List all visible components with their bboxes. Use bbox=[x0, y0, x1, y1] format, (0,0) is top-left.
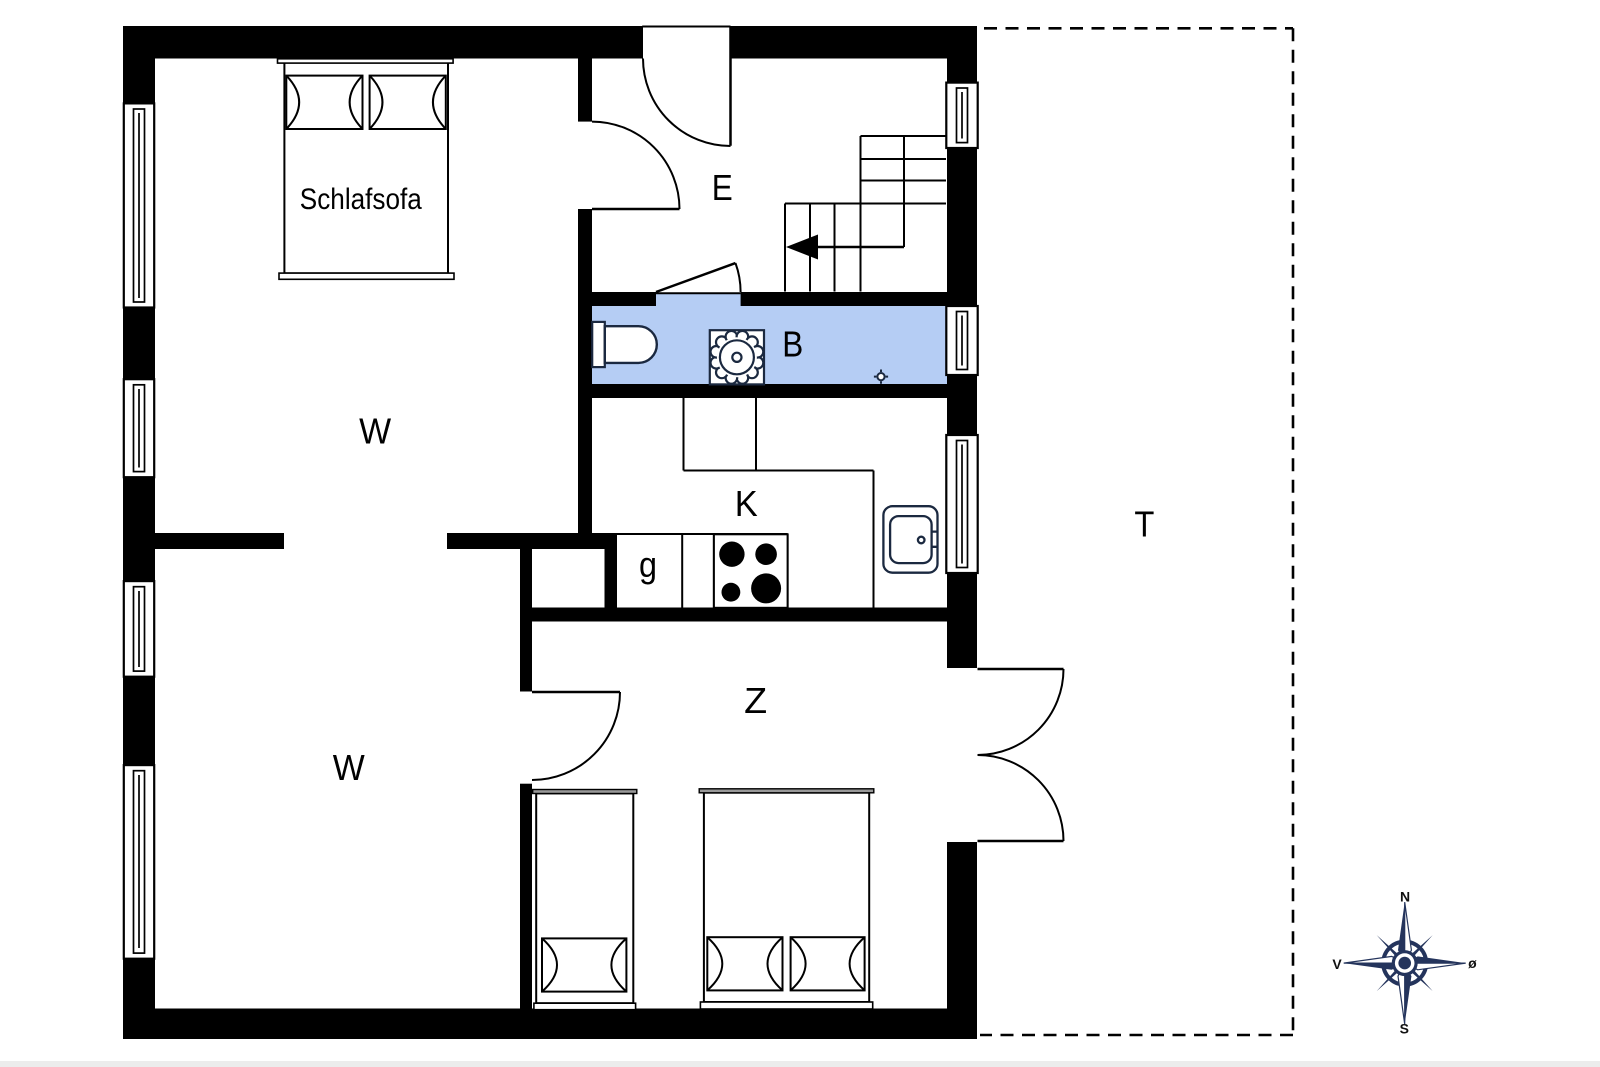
svg-text:Schlafsofa: Schlafsofa bbox=[300, 183, 422, 216]
svg-text:Z: Z bbox=[744, 680, 767, 721]
svg-text:E: E bbox=[712, 167, 733, 208]
svg-text:W: W bbox=[333, 747, 365, 788]
svg-text:T: T bbox=[1134, 504, 1154, 545]
svg-text:V: V bbox=[1332, 956, 1342, 972]
svg-text:B: B bbox=[782, 323, 803, 364]
svg-text:g: g bbox=[639, 544, 657, 585]
svg-text:S: S bbox=[1400, 1020, 1409, 1036]
svg-text:N: N bbox=[1400, 888, 1410, 904]
svg-text:W: W bbox=[359, 411, 391, 452]
svg-text:K: K bbox=[735, 483, 758, 524]
svg-text:ø: ø bbox=[1468, 955, 1477, 971]
